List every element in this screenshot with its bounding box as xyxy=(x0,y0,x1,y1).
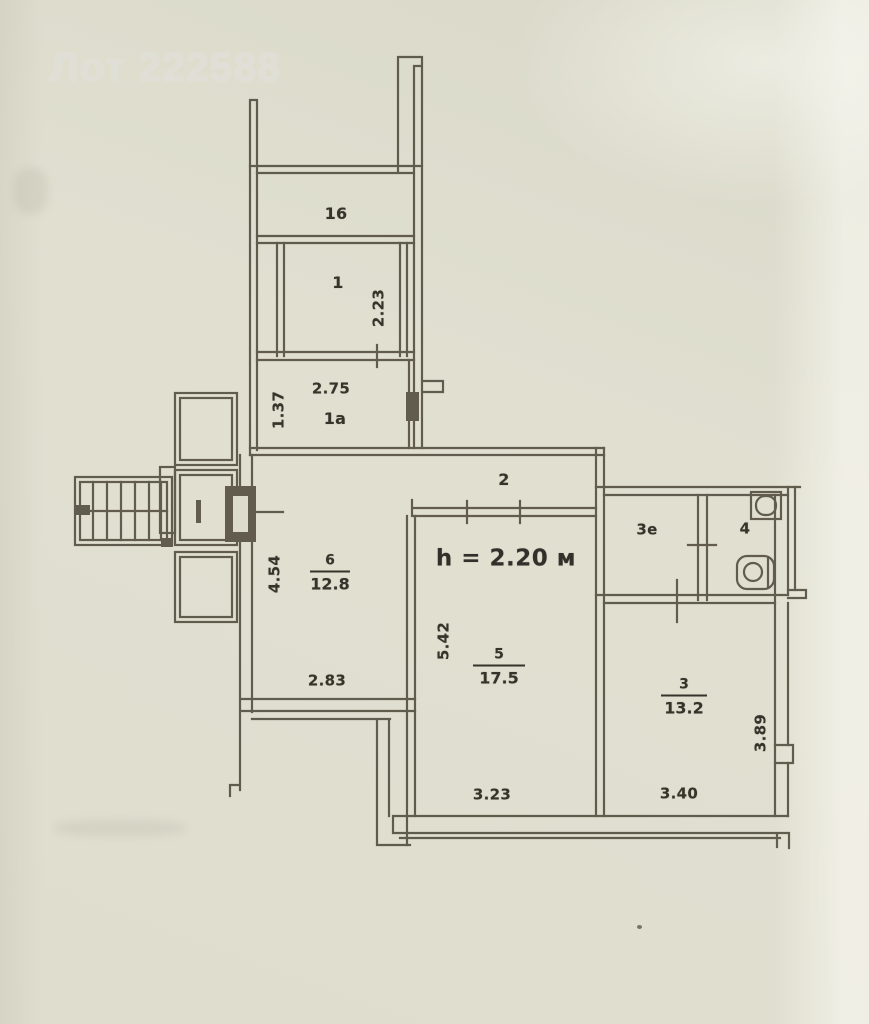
room6-depth-dimension: 4.54 xyxy=(268,555,283,593)
room3e-number-label: 3е xyxy=(636,523,657,538)
room6-area-label: 12.8 xyxy=(310,577,349,593)
balcony-number-label: 16 xyxy=(325,206,348,222)
floorplan-drawing xyxy=(0,0,869,1024)
room5-area-label: 17.5 xyxy=(479,671,518,687)
room1a-width-dimension: 2.75 xyxy=(312,382,350,397)
room6-number-label: 6 xyxy=(325,554,335,568)
landing-door-tick xyxy=(196,500,201,523)
room1-depth-dimension: 2.23 xyxy=(372,289,387,327)
staircase xyxy=(75,477,172,545)
entry-door-icon xyxy=(225,486,283,542)
fraction-bar xyxy=(661,695,707,697)
corridor-number-label: 2 xyxy=(498,472,509,488)
fraction-bar xyxy=(473,665,525,667)
room1a-number-label: 1а xyxy=(324,411,347,427)
room3-label-stack: 3 13.2 xyxy=(661,678,707,717)
room4-number-label: 4 xyxy=(740,522,751,537)
room1a-door-mark xyxy=(406,392,419,421)
walls xyxy=(230,57,806,848)
room5-depth-dimension: 5.42 xyxy=(437,622,452,660)
room3-depth-dimension: 3.89 xyxy=(754,714,769,752)
paper-smudge xyxy=(55,820,185,836)
toilet-icon xyxy=(737,556,774,589)
stair-arrow-mark xyxy=(76,505,90,515)
room1-number-label: 1 xyxy=(332,275,343,291)
room5-number-label: 5 xyxy=(494,648,504,662)
paper-speck xyxy=(637,925,642,929)
room1a-depth-dimension: 1.37 xyxy=(272,391,287,429)
floorplan-scan: Лот 222588 16 1 2.23 2.75 1а 1.37 2 h = … xyxy=(0,0,869,1024)
room3-area-label: 13.2 xyxy=(664,701,703,717)
room5-label-stack: 5 17.5 xyxy=(473,648,525,687)
room3-number-label: 3 xyxy=(679,678,689,692)
lot-number-label: Лот 222588 xyxy=(50,44,281,91)
ceiling-height-note: h = 2.20 м xyxy=(436,548,576,571)
room6-width-dimension: 2.83 xyxy=(308,674,346,689)
room3-width-dimension: 3.40 xyxy=(660,787,698,802)
room6-label-stack: 6 12.8 xyxy=(310,554,350,593)
door-window-ticks xyxy=(377,345,716,622)
room5-width-dimension: 3.23 xyxy=(473,788,511,803)
fraction-bar xyxy=(310,571,350,573)
paper-smudge xyxy=(14,168,48,214)
